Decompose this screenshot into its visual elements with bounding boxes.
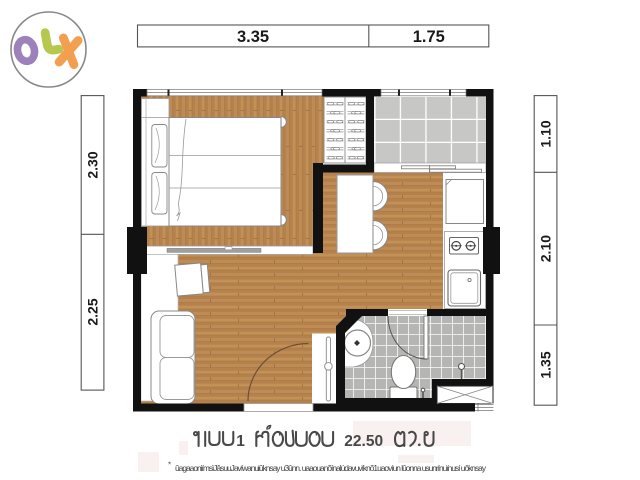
svg-text:2.30: 2.30 — [85, 151, 101, 178]
svg-text:2.25: 2.25 — [85, 298, 101, 325]
svg-text:3.35: 3.35 — [237, 28, 269, 46]
svg-text:*: * — [168, 461, 171, 470]
svg-text:2.10: 2.10 — [538, 235, 554, 262]
svg-text:22.50: 22.50 — [344, 433, 383, 450]
svg-text:1.10: 1.10 — [538, 120, 554, 147]
svg-text:ûagaaoniïmsïJâsuuJavíwanuiûkns: ûagaaoniïmsïJâsuuJavíwanuiûknsay u3ûnn. … — [175, 463, 487, 473]
svg-text:1: 1 — [236, 433, 245, 450]
svg-text:1.35: 1.35 — [538, 351, 554, 378]
svg-text:1.75: 1.75 — [413, 28, 445, 46]
